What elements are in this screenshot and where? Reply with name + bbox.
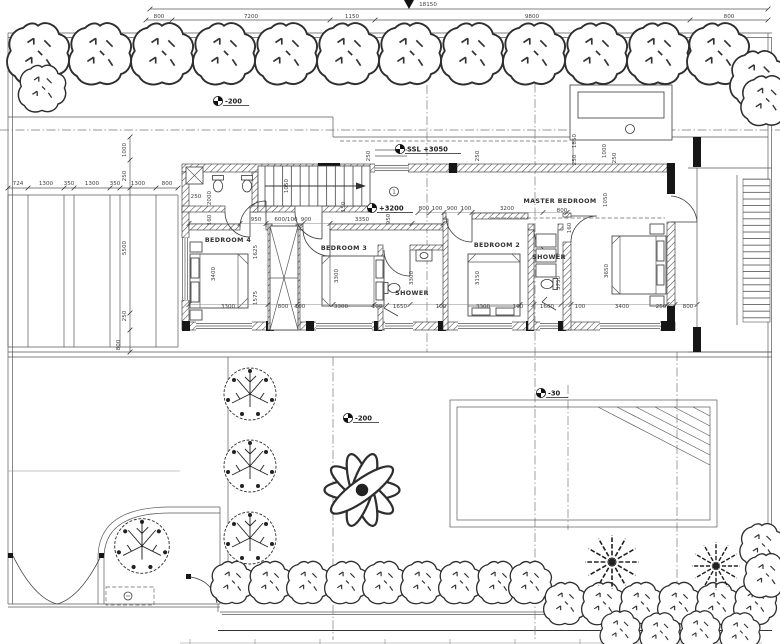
dimension-label: 1000 — [602, 143, 608, 158]
dimension-label: 900 — [447, 206, 458, 212]
dimension-label: 100 — [575, 304, 586, 310]
dimension-label: 350 — [64, 181, 75, 187]
bed — [612, 224, 666, 306]
shrub-icon — [401, 561, 444, 603]
shrub-icon — [439, 561, 482, 603]
level-label: -30 — [548, 390, 561, 398]
floor-plan-canvas: 1815080072001150980080072413003501300350… — [0, 0, 780, 644]
level-marker-icon — [367, 203, 376, 212]
left-dimension-line — [128, 135, 133, 355]
room-label: SHOWER — [395, 290, 429, 297]
dimension-label: 950 — [251, 217, 262, 223]
tree-icon — [115, 519, 170, 574]
tree-icon — [224, 512, 276, 564]
dimension-label: 350 — [110, 181, 121, 187]
dimension-label: 3200 — [500, 206, 515, 212]
dimension-label: 18150 — [419, 2, 437, 8]
dimension-label: 1650 — [393, 304, 408, 310]
dimension-label: 100 — [295, 304, 306, 310]
shrub-icon — [627, 23, 689, 84]
roof-planter — [570, 85, 672, 163]
dimension-label: 250 — [366, 150, 372, 161]
dimension-label: 3300 — [334, 304, 349, 310]
dimension-label: 1300 — [131, 181, 146, 187]
dimension-label: 150 — [341, 201, 347, 212]
dimension-label: 2000 — [207, 190, 213, 205]
west-window — [181, 238, 190, 300]
dimension-label: 1575 — [253, 290, 259, 305]
palm-icon — [325, 451, 400, 529]
shrub-icon — [325, 561, 368, 603]
pergola — [6, 186, 181, 347]
dimension-label: 800 — [154, 14, 165, 20]
dimension-label: 1625 — [253, 244, 259, 259]
shrub-icon — [565, 23, 627, 84]
dimension-label: 5500 — [122, 240, 128, 255]
dimension-label: 160 — [207, 214, 213, 225]
room-label: MASTER BEDROOM — [523, 198, 596, 205]
shrub-icon — [287, 561, 330, 603]
dimension-label: 1600 — [540, 304, 555, 310]
shrub-icon — [503, 23, 565, 84]
shrub-icon — [131, 23, 193, 84]
dimension-label: 160 — [567, 222, 573, 233]
vegetation-trees — [115, 368, 276, 573]
dimension-label: 250 — [191, 194, 202, 200]
dimension-label: 800 — [116, 339, 122, 350]
shrub-icon — [744, 554, 780, 598]
dimension-label: 250 — [612, 152, 618, 163]
shrub-icon — [255, 23, 317, 84]
dimension-label: 3300 — [476, 304, 491, 310]
utility-box — [106, 587, 154, 605]
dimension-label: 100 — [461, 206, 472, 212]
shrub-icon — [544, 582, 587, 624]
level-label: -200 — [355, 415, 372, 423]
dimension-label: 3300 — [409, 270, 415, 285]
dimension-label: 600/100 — [274, 217, 298, 223]
fern-icon — [585, 535, 639, 589]
dimension-label: 100 — [432, 206, 443, 212]
vegetation-palms — [325, 451, 400, 529]
shrub-icon — [379, 23, 441, 84]
room-label: BEDROOM 4 — [205, 237, 252, 244]
top-dimension-lines — [144, 0, 771, 22]
dimension-label: 800 — [278, 304, 289, 310]
dimension-label: 3350 — [355, 217, 370, 223]
dimension-label: 1850 — [572, 133, 578, 148]
dimension-label: 3300 — [334, 268, 340, 283]
dimension-label: 3750 — [556, 275, 562, 290]
level-marker-icon — [536, 388, 545, 397]
dimension-label: 724 — [13, 181, 24, 187]
dimension-label: 9800 — [525, 14, 540, 20]
timber-deck — [688, 137, 772, 352]
dimension-label: 1150 — [345, 14, 360, 20]
level-marker-icon — [343, 413, 352, 422]
dimension-label: 1000 — [122, 142, 128, 157]
dimension-label: 3650 — [604, 263, 610, 278]
level-marker-icon — [213, 96, 222, 105]
entry-window — [375, 150, 408, 173]
bed — [190, 242, 248, 320]
dimension-label: 250 — [475, 150, 481, 161]
shrub-icon — [317, 23, 379, 84]
north-arrow-icon — [404, 0, 414, 9]
dimension-label: 1050 — [603, 192, 609, 207]
level-label: -200 — [225, 98, 242, 106]
toilet-icon — [213, 176, 224, 193]
pool-steps — [598, 407, 710, 465]
dimension-label: 250 — [122, 170, 128, 181]
shrub-icon — [363, 561, 406, 603]
shrub-icon — [741, 76, 780, 126]
vehicle-gate — [13, 556, 101, 604]
dimension-label: 1050 — [284, 178, 290, 193]
dimension-label: 1300 — [85, 181, 100, 187]
dimension-label: 3400 — [615, 304, 630, 310]
dimension-label: 3300 — [221, 304, 236, 310]
dimension-label: 3400 — [211, 266, 217, 281]
dimension-label: 800 — [419, 206, 430, 212]
floor-plan-drawing: 1815080072001150980080072413003501300350… — [0, 0, 780, 644]
room-label: SHOWER — [532, 254, 566, 261]
furniture — [190, 224, 666, 330]
room-label: BEDROOM 2 — [474, 242, 520, 249]
dimension-label: 800 — [557, 208, 568, 214]
entry-gates — [8, 507, 220, 605]
dimension-label: 3150 — [475, 270, 481, 285]
shrub-icon — [249, 561, 292, 603]
dimension-label: 800 — [724, 14, 735, 20]
room-label: BEDROOM 3 — [321, 245, 367, 252]
tree-icon — [224, 440, 276, 492]
shrub-icon — [441, 23, 503, 84]
dimension-label: 1300 — [39, 181, 54, 187]
shrub-icon — [69, 23, 131, 84]
dimension-label: 7200 — [244, 14, 259, 20]
dimension-label: 250 — [122, 310, 128, 321]
tree-icon — [224, 368, 276, 420]
room-labels: BEDROOM 4BEDROOM 3SHOWERBEDROOM 2SHOWERM… — [205, 198, 597, 297]
dimension-label: 900 — [301, 217, 312, 223]
toilet-icon — [242, 176, 253, 193]
dimension-label: 800 — [683, 304, 694, 310]
dimension-label: 100 — [372, 304, 383, 310]
level-label: SSL +3050 — [407, 146, 448, 154]
dimension-label: 100 — [436, 304, 447, 310]
dimension-label: 1 — [392, 190, 396, 196]
level-marker-icon — [395, 144, 404, 153]
dimension-label: 100 — [513, 304, 524, 310]
level-label: +3200 — [379, 205, 404, 213]
shrub-icon — [211, 561, 254, 603]
shrub-icon — [193, 23, 255, 84]
dimension-label: 250 — [572, 154, 578, 165]
dimension-label: 950 — [386, 213, 392, 224]
dimension-label: 250 — [656, 304, 667, 310]
dimension-label: 800 — [162, 181, 173, 187]
bed — [322, 256, 384, 306]
